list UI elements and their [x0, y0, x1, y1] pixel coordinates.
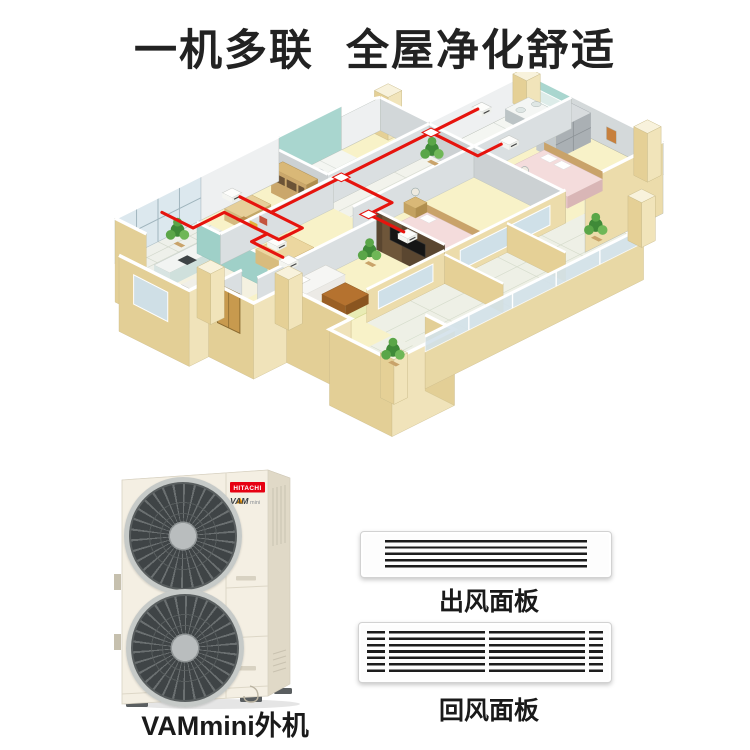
outdoor-unit-illustration: HITACHI VAM mini [112, 458, 317, 710]
hitachi-logo-text: HITACHI [233, 485, 261, 492]
grille-column [389, 631, 485, 674]
page-title: 一机多联 全屋净化舒适 [0, 16, 750, 78]
unit-side [268, 470, 290, 696]
return-panel-grille [367, 631, 603, 674]
fan-grille [124, 477, 242, 595]
outdoor-unit-caption: VAMmini外机 [105, 704, 345, 743]
grille-column [367, 631, 385, 674]
outlet-panel-slats [385, 540, 587, 569]
grille-column [489, 631, 585, 674]
outlet-panel-illustration [360, 531, 612, 578]
fan-grille [126, 589, 244, 707]
outlet-panel-caption: 出风面板 [364, 582, 614, 618]
return-panel-illustration [358, 622, 612, 683]
floorplan-illustration [80, 72, 665, 501]
vam-logo-suffix: mini [250, 500, 260, 506]
return-panel-caption: 回风面板 [364, 691, 614, 727]
page: 一机多联 全屋净化舒适 [0, 0, 750, 750]
grille-column [589, 631, 603, 674]
